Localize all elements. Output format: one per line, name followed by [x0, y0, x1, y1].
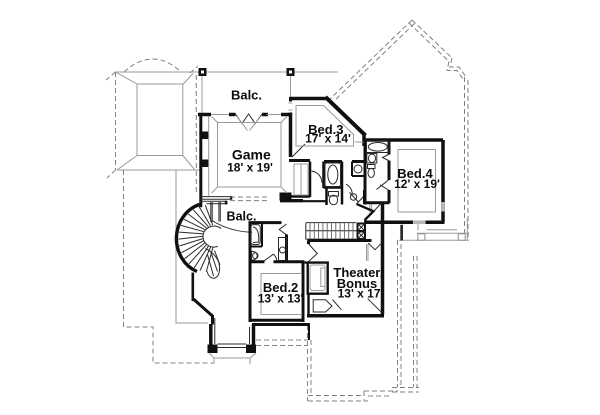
svg-text:12' x 19': 12' x 19'	[394, 177, 440, 191]
svg-text:13' x 13': 13' x 13'	[258, 291, 304, 305]
svg-text:Balc.: Balc.	[231, 87, 262, 102]
svg-text:13' x 17': 13' x 17'	[338, 286, 384, 300]
svg-text:17' x 14': 17' x 14'	[305, 132, 351, 146]
svg-text:18' x 19': 18' x 19'	[227, 160, 273, 174]
